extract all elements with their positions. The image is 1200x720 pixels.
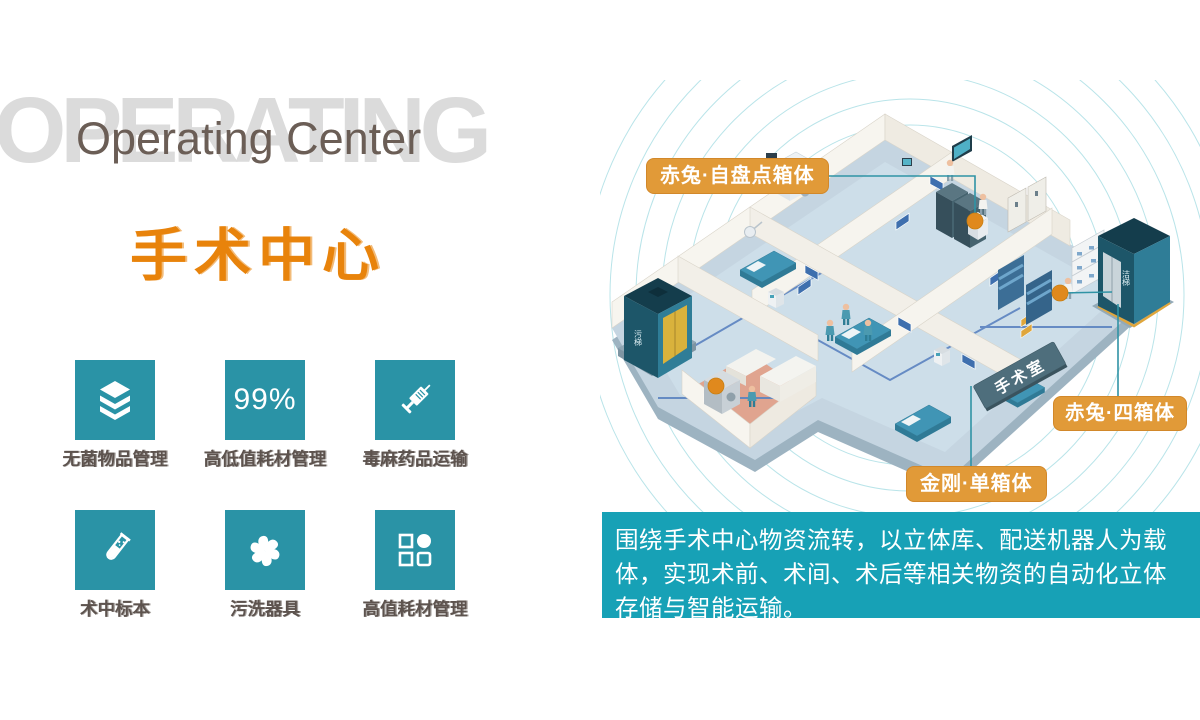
grid-icon bbox=[393, 528, 437, 572]
feature-tile-sterile bbox=[75, 360, 155, 440]
feature-label: 高值耗材管理 bbox=[325, 596, 505, 621]
feature-tile-specimen bbox=[75, 510, 155, 590]
feature-tile-percent: 99% bbox=[225, 360, 305, 440]
operating-center-page: OPERATING Operating Center 手术中心 无菌物品管理 9… bbox=[0, 0, 1200, 720]
feature-tile-narcotics bbox=[375, 360, 455, 440]
elevator-tower-clean: 洁梯 bbox=[1092, 218, 1174, 328]
callout-self-inventory-cabinet: 赤兔·自盘点箱体 bbox=[646, 158, 829, 194]
percent-badge: 99% bbox=[233, 383, 296, 417]
callout-single-box-cabinet: 金刚·单箱体 bbox=[906, 466, 1047, 502]
feature-tile-consumables bbox=[375, 510, 455, 590]
elevator-dirty-label: 污梯 bbox=[634, 329, 643, 347]
test-tube-icon bbox=[93, 528, 137, 572]
operating-center-diagram: 污梯 洁梯 手术室 bbox=[600, 80, 1200, 520]
fan-icon bbox=[243, 528, 287, 572]
feature-label: 毒麻药品运输 bbox=[325, 446, 505, 471]
subtitle-english: Operating Center bbox=[76, 116, 421, 161]
syringe-icon bbox=[393, 378, 437, 422]
description-panel: 围绕手术中心物资流转，以立体库、配送机器人为载体，实现术前、术间、术后等相关物资… bbox=[602, 512, 1200, 618]
layers-icon bbox=[93, 378, 137, 422]
callout-four-box-cabinet: 赤兔·四箱体 bbox=[1053, 396, 1187, 431]
feature-tile-washing bbox=[225, 510, 305, 590]
elevator-clean-label: 洁梯 bbox=[1122, 269, 1131, 287]
page-title: 手术中心 bbox=[130, 210, 386, 292]
